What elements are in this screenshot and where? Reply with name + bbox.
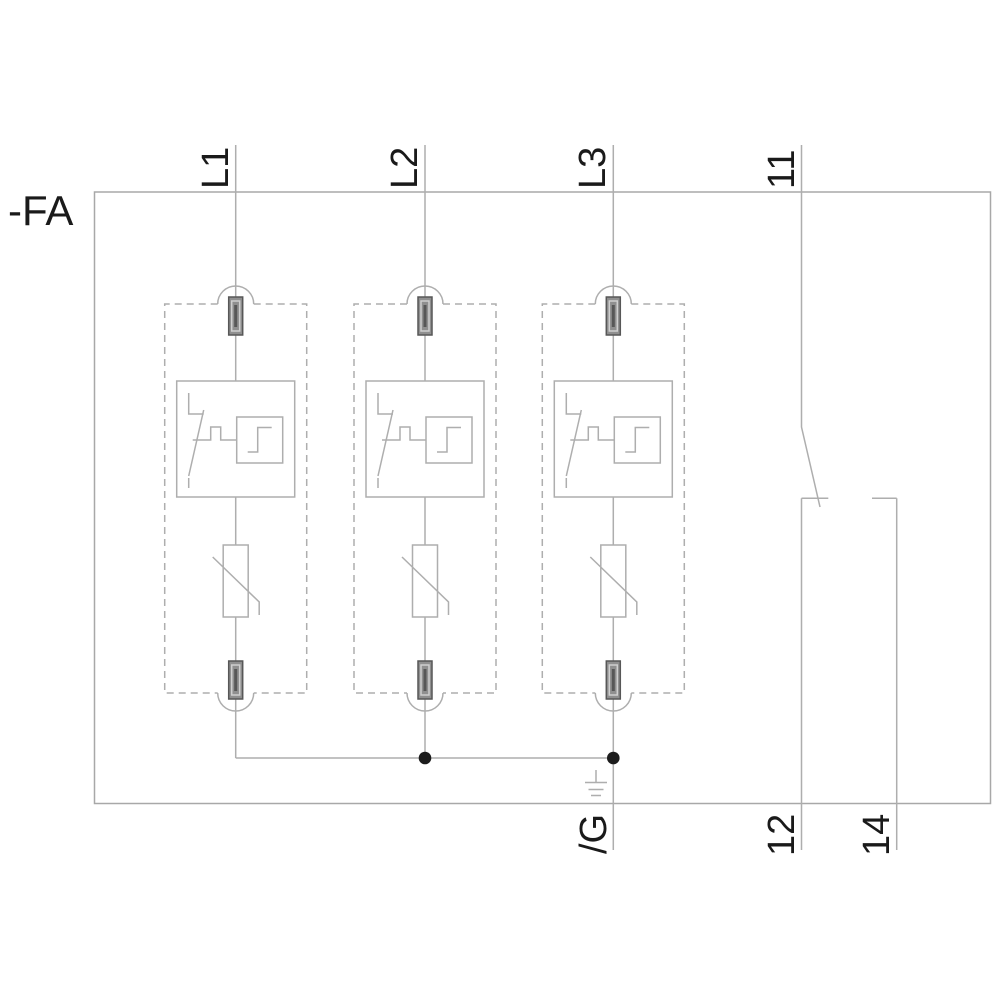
phase-l3-label: L3 — [576, 147, 610, 189]
surge-module-l2 — [354, 145, 496, 758]
junction-dot — [419, 752, 432, 765]
contact-nc-wire — [802, 498, 829, 850]
contact-terminal-14-label: 14 — [860, 814, 894, 856]
junction-dot — [607, 752, 620, 765]
schematic-canvas: -FA L1 L2 L3 11 12 14 /G — [0, 0, 1000, 1000]
earth-icon — [585, 770, 607, 796]
remote-contact-switch — [802, 145, 897, 850]
phase-l2-label: L2 — [388, 147, 422, 189]
surge-module-l3 — [542, 145, 684, 758]
contact-no-wire — [872, 498, 897, 850]
contact-terminal-12-label: 12 — [765, 814, 799, 856]
surge-protection-schematic — [0, 0, 1000, 1000]
contact-blade — [802, 145, 821, 507]
device-designation-label: -FA — [8, 191, 73, 231]
contact-terminal-11-label: 11 — [765, 150, 799, 189]
surge-module-l1 — [165, 145, 307, 758]
phase-l1-label: L1 — [199, 147, 233, 189]
ground-terminal-label: /G — [577, 814, 611, 854]
